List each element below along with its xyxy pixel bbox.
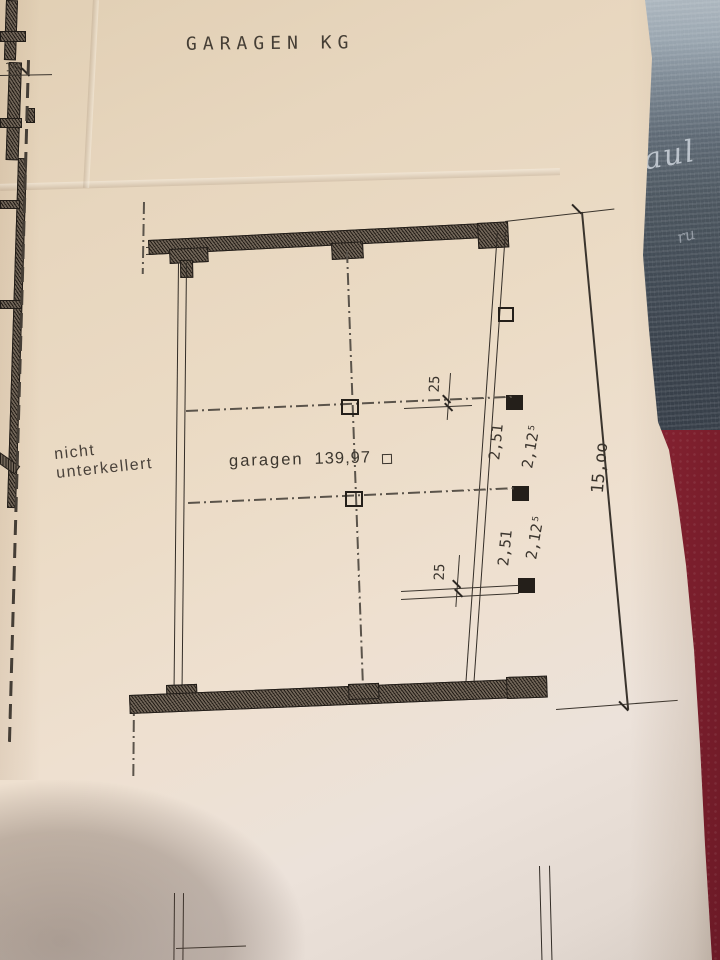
column-marker <box>498 307 514 322</box>
column-marker <box>518 578 535 593</box>
plan-title: GARAGEN KG <box>186 32 355 54</box>
lower-plan-wall <box>539 866 553 960</box>
dimension-label-bay: 2,51 <box>485 423 507 461</box>
bottom-wall-corner-right <box>506 676 548 699</box>
room-area-value: 139,97 <box>314 448 371 468</box>
left-plan-wall <box>0 31 26 42</box>
axis-line <box>142 202 145 274</box>
dimension-label-25-bottom: 25 <box>432 563 449 580</box>
center-axis-line <box>346 251 364 689</box>
left-plan-wall-branch <box>0 300 22 309</box>
room-label: garagen 139,97 <box>229 448 392 471</box>
interior-column-marker <box>341 399 359 415</box>
interior-column-marker <box>345 491 363 507</box>
fabric-embroidery-script-small: ru <box>675 224 697 247</box>
room-name: garagen <box>229 450 304 471</box>
square-meter-icon <box>382 453 392 463</box>
left-plan-wall-branch <box>0 200 20 209</box>
annotation-not-cellared: nicht unterkellert <box>53 435 154 483</box>
dimension-extension-line <box>455 555 460 607</box>
dimension-label-bay: 2,12⁵ <box>518 422 544 470</box>
dimension-label-25-top: 25 <box>427 375 444 392</box>
dimension-label-bay: 2,12⁵ <box>522 513 548 561</box>
photographer-shadow <box>0 730 360 960</box>
left-plan-wall <box>0 118 22 128</box>
dimension-extension-line <box>505 209 614 223</box>
dimension-extension-line <box>447 373 452 420</box>
beam-edge-line <box>404 405 472 409</box>
left-plan-dimension: 1o <box>5 60 20 75</box>
dimension-label-bay: 2,51 <box>494 529 516 567</box>
bottom-wall-pier-middle <box>348 683 380 700</box>
plan-paper-sheet: GARAGEN KG 1o <box>0 0 720 960</box>
paper-crease-vertical <box>83 0 99 188</box>
dimension-label-depth: 15,oo <box>588 442 612 495</box>
left-wall <box>174 263 187 687</box>
photo-of-floor-plan: Saul ru GARAGEN KG 1o <box>0 0 720 960</box>
